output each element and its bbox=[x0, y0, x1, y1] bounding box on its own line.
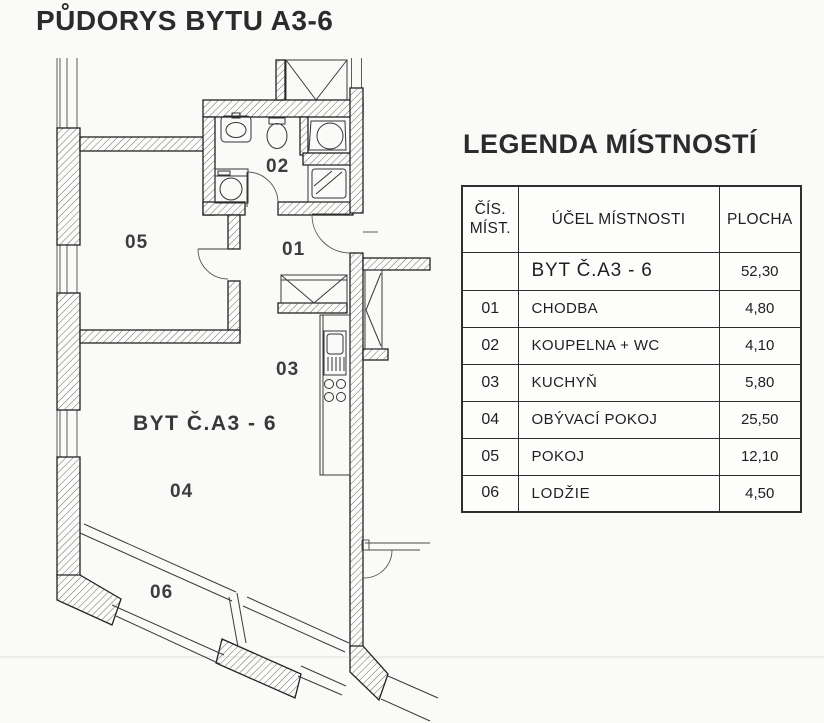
room-name-cell: KUCHYŇ bbox=[518, 364, 719, 401]
summary-row: BYT Č.A3 - 6 52,30 bbox=[462, 252, 801, 290]
room-label-02: 02 bbox=[266, 156, 289, 177]
right-wall-top-lines bbox=[352, 58, 362, 88]
apartment-label: BYT Č.A3 - 6 bbox=[133, 411, 277, 435]
door-bathroom bbox=[247, 172, 278, 207]
table-header-row: ČÍS. MÍST. ÚČEL MÍSTNOSTI PLOCHA bbox=[462, 186, 801, 252]
door-neighbour bbox=[362, 540, 430, 578]
room-label-04: 04 bbox=[170, 481, 193, 502]
room-label-05: 05 bbox=[125, 232, 148, 253]
scan-crease bbox=[0, 656, 824, 658]
room-name-cell: KOUPELNA + WC bbox=[518, 327, 719, 364]
vent-shaft-east bbox=[365, 270, 382, 349]
table-row: 06 LODŽIE 4,50 bbox=[462, 475, 801, 512]
vent-shaft-top bbox=[286, 60, 347, 100]
boiler-room bbox=[309, 121, 346, 150]
room-number-cell: 06 bbox=[462, 475, 518, 512]
washing-machine bbox=[215, 169, 248, 203]
shower bbox=[308, 165, 350, 202]
header-mist: MÍST. bbox=[470, 220, 511, 237]
table-row: 02 KOUPELNA + WC 4,10 bbox=[462, 327, 801, 364]
facade-lines bbox=[243, 597, 438, 721]
room-number-cell: 04 bbox=[462, 401, 518, 438]
toilet bbox=[267, 118, 287, 149]
walls bbox=[57, 60, 430, 700]
hall-closet bbox=[281, 275, 347, 303]
legend-title: LEGENDA MÍSTNOSTÍ bbox=[463, 129, 757, 160]
room-label-06: 06 bbox=[150, 582, 173, 603]
table-row: 04 OBÝVACÍ POKOJ 25,50 bbox=[462, 401, 801, 438]
room-area-cell: 5,80 bbox=[719, 364, 801, 401]
room-area-cell: 12,10 bbox=[719, 438, 801, 475]
summary-number-cell bbox=[462, 252, 518, 290]
header-room-number: ČÍS. MÍST. bbox=[462, 186, 518, 252]
door-room05 bbox=[198, 249, 228, 279]
room-area-cell: 4,10 bbox=[719, 327, 801, 364]
header-room-purpose: ÚČEL MÍSTNOSTI bbox=[518, 186, 719, 252]
room-name-cell: POKOJ bbox=[518, 438, 719, 475]
floor-plan: 05 02 01 03 04 06 BYT Č.A3 - 6 bbox=[20, 50, 440, 723]
summary-name-cell: BYT Č.A3 - 6 bbox=[518, 252, 719, 290]
page-title: PŮDORYS BYTU A3-6 bbox=[36, 5, 333, 37]
room-name-cell: LODŽIE bbox=[518, 475, 719, 512]
room-number-cell: 05 bbox=[462, 438, 518, 475]
room-area-cell: 25,50 bbox=[719, 401, 801, 438]
table-row: 03 KUCHYŇ 5,80 bbox=[462, 364, 801, 401]
room-number-cell: 01 bbox=[462, 290, 518, 327]
legend-table: ČÍS. MÍST. ÚČEL MÍSTNOSTI PLOCHA BYT Č.A… bbox=[461, 185, 802, 513]
header-cis: ČÍS. bbox=[475, 201, 506, 218]
scanned-floor-plan-page: PŮDORYS BYTU A3-6 bbox=[0, 0, 824, 723]
table-row: 01 CHODBA 4,80 bbox=[462, 290, 801, 327]
door-entrance bbox=[312, 214, 378, 253]
summary-area-cell: 52,30 bbox=[719, 252, 801, 290]
table-row: 05 POKOJ 12,10 bbox=[462, 438, 801, 475]
stove bbox=[325, 380, 346, 402]
header-area: PLOCHA bbox=[719, 186, 801, 252]
room-label-03: 03 bbox=[276, 359, 299, 380]
room-label-01: 01 bbox=[282, 239, 305, 260]
room-number-cell: 02 bbox=[462, 327, 518, 364]
room-area-cell: 4,50 bbox=[719, 475, 801, 512]
room-area-cell: 4,80 bbox=[719, 290, 801, 327]
kitchen-sink bbox=[324, 331, 346, 375]
room-name-cell: OBÝVACÍ POKOJ bbox=[518, 401, 719, 438]
room-number-cell: 03 bbox=[462, 364, 518, 401]
room-name-cell: CHODBA bbox=[518, 290, 719, 327]
